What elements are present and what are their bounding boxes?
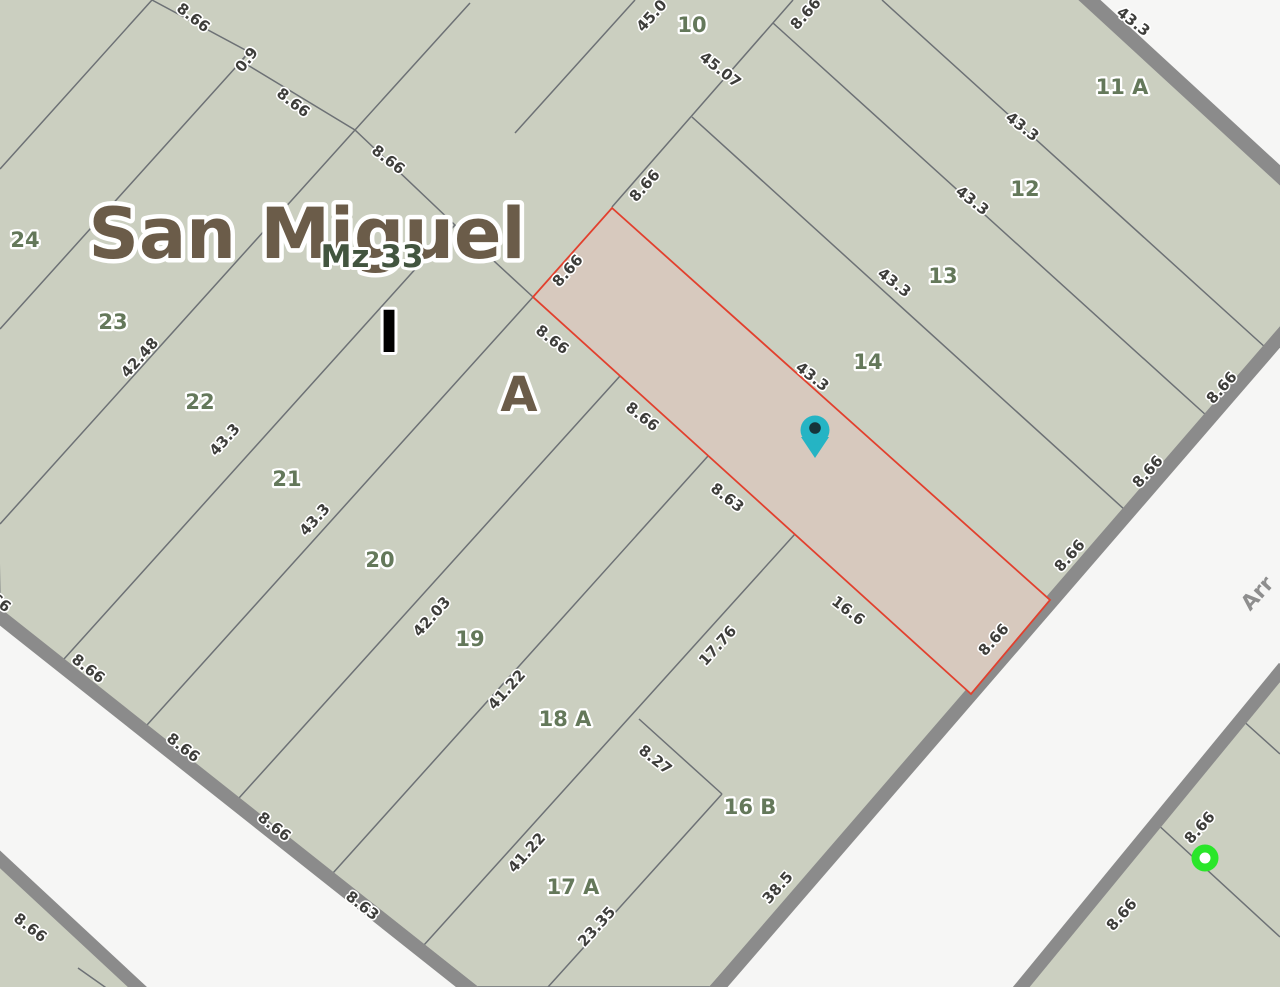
parcel-number-label: 10 (677, 13, 706, 37)
parcel-number-label: 14 (853, 350, 882, 374)
sector-label-a: A (500, 367, 537, 423)
parcel-number-label: 18 A (539, 707, 593, 731)
location-pin-hole (809, 422, 821, 434)
parcel-number-label: 21 (272, 467, 301, 491)
parcel-number-label: 22 (185, 390, 214, 414)
parcel-number-label: 12 (1010, 177, 1039, 201)
green-point-marker[interactable] (1196, 849, 1215, 868)
parcel-number-label: 24 (10, 228, 39, 252)
block-number-label: Mz 33 (321, 239, 424, 275)
parcel-number-label: 16 B (724, 795, 777, 819)
map-canvas[interactable]: 45.00.98.668.668.6642.4843.343.342.0341.… (0, 0, 1280, 987)
neighborhood-title: San Miguel (89, 193, 526, 275)
parcel-number-label: 20 (365, 548, 394, 572)
sector-label-i: I (378, 298, 400, 366)
parcel-number-label: 23 (98, 310, 127, 334)
parcel-number-label: 17 A (547, 875, 601, 899)
parcel-number-label: 13 (928, 264, 957, 288)
parcel-number-label: 19 (455, 627, 484, 651)
cadastral-map[interactable]: 45.00.98.668.668.6642.4843.343.342.0341.… (0, 0, 1280, 987)
parcel-number-label: 11 A (1096, 75, 1150, 99)
